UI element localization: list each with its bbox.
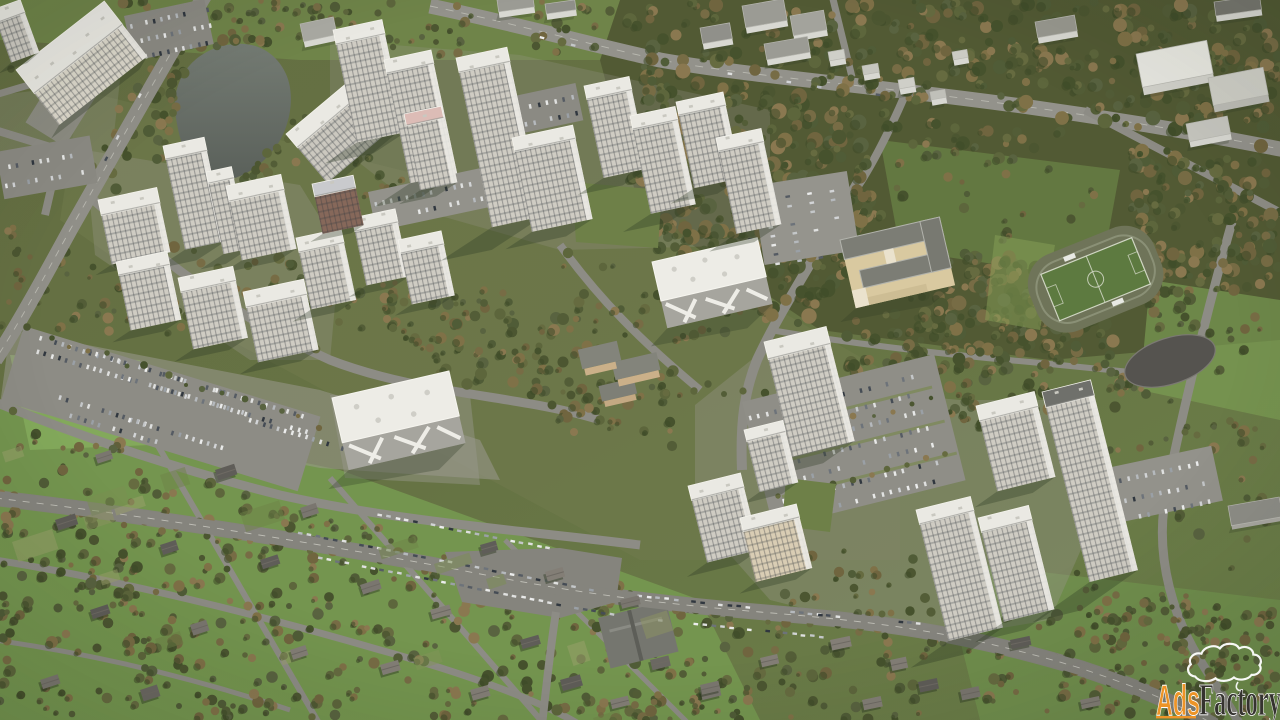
svg-text:Factory: Factory	[1199, 674, 1280, 720]
svg-text:Ads: Ads	[1156, 676, 1200, 720]
